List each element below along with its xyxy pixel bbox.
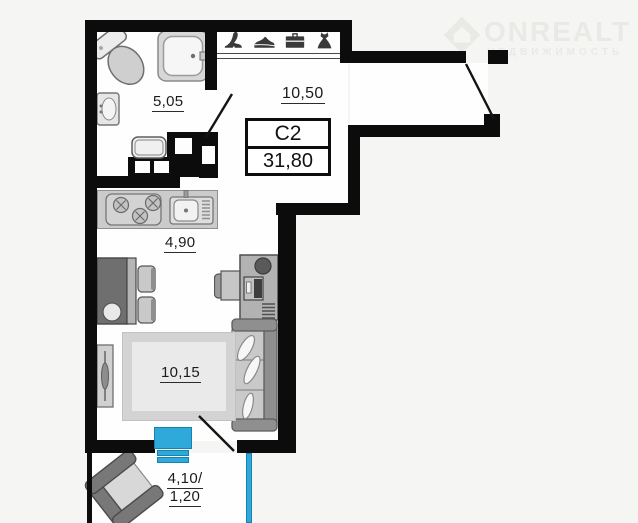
duct-shaft [85, 176, 180, 188]
desk-chair-icon [215, 271, 241, 300]
bathroom-area-label: 5,05 [152, 93, 184, 110]
floor-plan: ONREALT НЕДВИЖИМОСТЬ [0, 0, 638, 523]
radiator-icon [96, 344, 114, 408]
briefcase-icon [284, 29, 306, 51]
balcony-area-label: 4,10/ 1,20 [156, 470, 214, 506]
watermark-brand: ONREALT [484, 16, 631, 48]
monitor-icon [244, 277, 263, 300]
unit-type-label: C2 [248, 121, 328, 149]
dining-chairs-icon [138, 266, 155, 323]
wall-entry-jamb-top [488, 50, 508, 64]
wall-hallway-bottom [350, 125, 500, 137]
watermark: ONREALT НЕДВИЖИМОСТЬ [443, 12, 638, 62]
washing-machine-icon [131, 136, 167, 159]
wall-living-right [278, 203, 296, 453]
kitchen-counter [97, 190, 218, 229]
hallway-area-label: 10,50 [281, 85, 325, 103]
duct-opening [202, 146, 215, 164]
sofa-icon [231, 318, 279, 432]
wall-top-step [340, 20, 352, 63]
wall-bathroom-right [205, 20, 217, 90]
wall-bottom-left [85, 440, 155, 453]
unit-card: C2 31,80 [245, 118, 331, 176]
kitchen-area-label: 4,90 [164, 234, 196, 251]
heel-shoe-icon [223, 29, 245, 51]
wall-top-left [85, 20, 352, 32]
dress-icon [314, 30, 335, 51]
floor-entry [350, 63, 488, 126]
duct-opening [135, 161, 150, 173]
wall-top-right [352, 51, 466, 63]
dining-table-icon [96, 257, 158, 327]
wall-bottom-right [237, 440, 296, 453]
wall-left [85, 20, 97, 453]
balcony-glazing [246, 453, 252, 523]
washbasin-icon [96, 92, 120, 126]
duct-opening [175, 138, 192, 154]
balcony-window-sill [157, 450, 189, 456]
stove-icon [106, 194, 161, 225]
balcony-window [154, 427, 192, 449]
wall-passage-right [348, 125, 360, 215]
desk-icon [214, 252, 280, 322]
wall-entry-jamb-bottom [484, 114, 500, 125]
balcony-window-sill [157, 457, 189, 463]
duct-opening [154, 161, 169, 173]
wall-balcony-left [87, 453, 92, 523]
living-area-label: 10,15 [160, 364, 201, 381]
closet-rod [217, 53, 340, 59]
unit-total-area: 31,80 [248, 149, 328, 173]
